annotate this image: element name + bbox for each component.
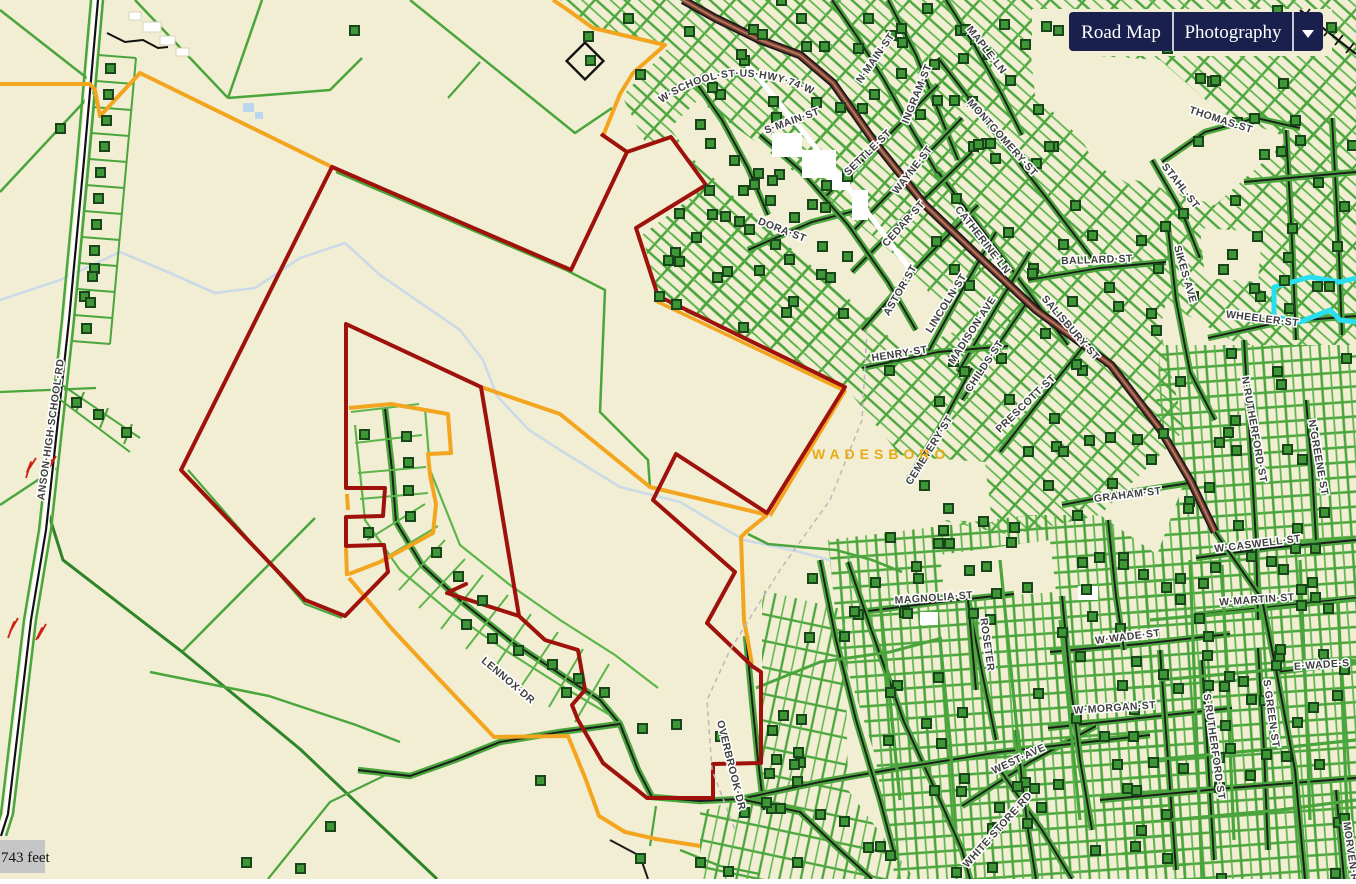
svg-text:743 feet: 743 feet — [1, 850, 51, 866]
svg-text:Road Map: Road Map — [1081, 22, 1161, 43]
svg-text:WADESBORO: WADESBORO — [812, 446, 950, 462]
svg-text:Photography: Photography — [1184, 22, 1282, 43]
svg-text:BALLARD·ST: BALLARD·ST — [1061, 253, 1133, 267]
